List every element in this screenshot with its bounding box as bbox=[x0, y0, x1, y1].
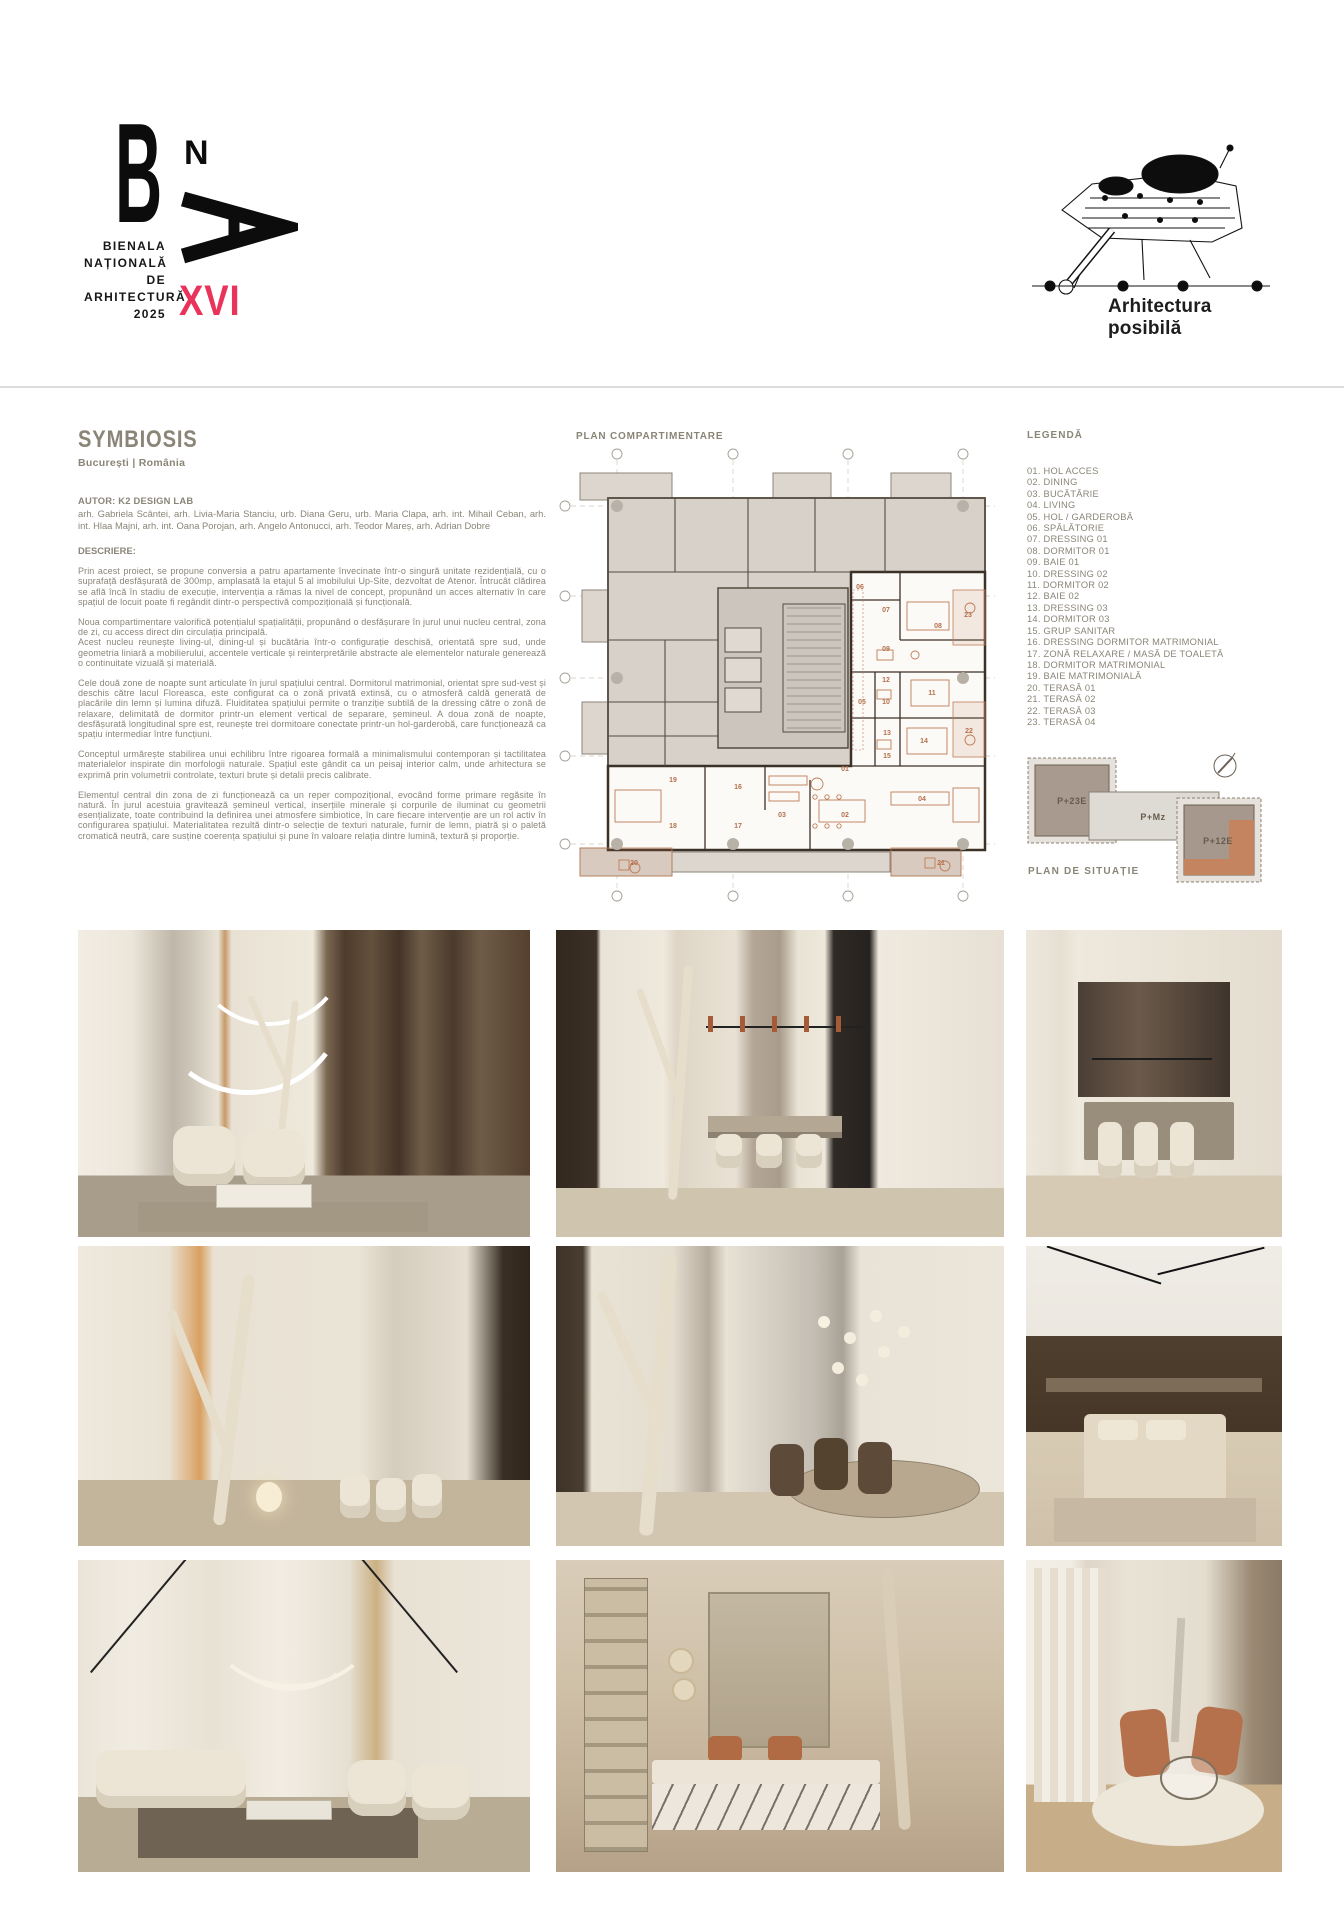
photo-bathroom-vanity bbox=[556, 1560, 1004, 1872]
dining-chair bbox=[858, 1442, 892, 1494]
marble-wall bbox=[1078, 982, 1230, 1097]
legend-item: 04. LIVING bbox=[1027, 500, 1327, 511]
legend-item: 01. HOL ACCES bbox=[1027, 466, 1327, 477]
description-paragraph: Conceptul urmărește stabilirea unui echi… bbox=[78, 749, 546, 780]
logo-letter-b: B bbox=[115, 95, 162, 253]
svg-text:04: 04 bbox=[918, 796, 926, 803]
legend-panel: LEGENDĂ 01. HOL ACCES02. DINING03. BUCĂT… bbox=[1027, 430, 1327, 728]
svg-text:09: 09 bbox=[882, 646, 890, 653]
svg-text:11: 11 bbox=[928, 690, 936, 697]
description-label: DESCRIERE: bbox=[78, 545, 546, 556]
stool bbox=[340, 1474, 370, 1518]
armchair bbox=[243, 1129, 305, 1189]
logo-caption-line: ARHITECTURĂ bbox=[84, 289, 166, 306]
wall-sconce bbox=[668, 1648, 694, 1674]
legend-item: 16. DRESSING DORMITOR MATRIMONIAL bbox=[1027, 637, 1327, 648]
bar-stool bbox=[1170, 1122, 1194, 1178]
photo-living-room-sofas bbox=[78, 1560, 530, 1872]
svg-text:05: 05 bbox=[858, 699, 866, 706]
area-rug bbox=[1054, 1498, 1256, 1542]
svg-text:12: 12 bbox=[882, 677, 890, 684]
legend-item: 22. TERASĂ 03 bbox=[1027, 706, 1327, 717]
legend-item: 12. BAIE 02 bbox=[1027, 591, 1327, 602]
wall-sconce bbox=[672, 1678, 696, 1702]
bubble-chandelier bbox=[818, 1316, 830, 1328]
pendant-cylinders bbox=[708, 1016, 864, 1032]
legend-list: 01. HOL ACCES02. DINING03. BUCĂTĂRIE04. … bbox=[1027, 466, 1327, 728]
hanging-light-curve bbox=[228, 1590, 354, 1691]
svg-text:08: 08 bbox=[934, 623, 942, 630]
page-title: SYMBIOSIS bbox=[78, 426, 471, 454]
tree-branch bbox=[636, 987, 684, 1102]
legend-item: 13. DRESSING 03 bbox=[1027, 603, 1327, 614]
legend-item: 09. BAIE 01 bbox=[1027, 557, 1327, 568]
photo-master-bedroom bbox=[1026, 1246, 1282, 1546]
svg-text:21: 21 bbox=[937, 860, 945, 867]
svg-text:17: 17 bbox=[734, 823, 742, 830]
track-light bbox=[1157, 1247, 1264, 1276]
authors-list: arh. Gabriela Scântei, arh. Livia-Maria … bbox=[78, 508, 546, 531]
legend-item: 11. DORMITOR 02 bbox=[1027, 580, 1327, 591]
glass-block-screen bbox=[584, 1578, 648, 1852]
svg-text:22: 22 bbox=[965, 728, 973, 735]
svg-text:01: 01 bbox=[841, 766, 849, 773]
pillow bbox=[1146, 1420, 1186, 1440]
description-paragraph: Elementul central din zona de zi funcțio… bbox=[78, 790, 546, 841]
photo-hall-tree-stools bbox=[78, 1246, 530, 1546]
svg-text:20: 20 bbox=[630, 860, 638, 867]
legend-item: 23. TERASĂ 04 bbox=[1027, 717, 1327, 728]
legend-item: 20. TERASĂ 01 bbox=[1027, 683, 1327, 694]
tree-sculpture bbox=[213, 1274, 256, 1526]
machine-illustration bbox=[1030, 138, 1275, 296]
vanity-counter bbox=[652, 1760, 880, 1784]
armchair bbox=[412, 1764, 470, 1820]
glass-table bbox=[1160, 1756, 1218, 1800]
photo-lounge-corner bbox=[1026, 1560, 1282, 1872]
description-paragraph: Cele două zone de noapte sunt articulate… bbox=[78, 678, 546, 739]
site-building-p12e: P+12E bbox=[1203, 836, 1233, 846]
tree-sculpture bbox=[881, 1568, 911, 1830]
legend-item: 18. DORMITOR MATRIMONIAL bbox=[1027, 660, 1327, 671]
legend-item: 17. ZONĂ RELAXARE / MASĂ DE TOALETĂ bbox=[1027, 649, 1327, 660]
bar-stool bbox=[1134, 1122, 1158, 1178]
plan-core bbox=[718, 588, 848, 748]
tree-branch bbox=[166, 1308, 234, 1460]
logo-letter-a-rotated bbox=[183, 199, 284, 256]
legend-item: 21. TERASĂ 02 bbox=[1027, 694, 1327, 705]
project-column: SYMBIOSIS București | România AUTOR: K2 … bbox=[78, 426, 546, 841]
light-cable bbox=[90, 1560, 188, 1673]
legend-item: 08. DORMITOR 01 bbox=[1027, 546, 1327, 557]
logo-caption-line: NAȚIONALĂ bbox=[84, 255, 166, 272]
header-divider bbox=[0, 386, 1344, 388]
sculpture bbox=[1171, 1618, 1185, 1742]
svg-text:19: 19 bbox=[669, 777, 677, 784]
curtain bbox=[1034, 1568, 1106, 1802]
legend-item: 06. SPĂLĂTORIE bbox=[1027, 523, 1327, 534]
logo-caption-line: 2025 bbox=[84, 306, 166, 323]
legend-item: 07. DRESSING 01 bbox=[1027, 534, 1327, 545]
photo-living-room-armchairs bbox=[78, 930, 530, 1237]
project-location: București | România bbox=[78, 457, 546, 469]
track-light bbox=[1047, 1246, 1162, 1284]
logo-letter-n: N bbox=[184, 134, 209, 172]
dining-chair bbox=[770, 1444, 804, 1496]
logo-caption: BIENALANAȚIONALĂDEARHITECTURĂ2025 bbox=[84, 238, 166, 323]
vessel-sink bbox=[768, 1736, 802, 1762]
svg-text:06: 06 bbox=[856, 584, 864, 591]
north-arrow-icon bbox=[1214, 753, 1236, 777]
legend-item: 02. DINING bbox=[1027, 477, 1327, 488]
stool bbox=[376, 1478, 406, 1522]
photo-dining-chandelier bbox=[556, 1246, 1004, 1546]
armchair bbox=[173, 1126, 235, 1186]
legend-item: 19. BAIE MATRIMONIALĂ bbox=[1027, 671, 1327, 682]
svg-text:18: 18 bbox=[669, 823, 677, 830]
svg-text:23: 23 bbox=[964, 612, 972, 619]
svg-text:15: 15 bbox=[883, 753, 891, 760]
edition-number: XVI bbox=[179, 277, 240, 326]
armchair bbox=[348, 1760, 406, 1816]
site-plan-title: PLAN DE SITUAȚIE bbox=[1028, 866, 1139, 877]
legend-item: 05. HOL / GARDEROBĂ bbox=[1027, 512, 1327, 523]
svg-text:16: 16 bbox=[734, 784, 742, 791]
stool bbox=[412, 1474, 442, 1518]
floor-plan-drawing: 0102030405060708091011121314151617181920… bbox=[555, 440, 1000, 910]
dining-chair bbox=[796, 1134, 822, 1168]
mirror bbox=[708, 1592, 830, 1748]
coffee-table bbox=[246, 1800, 332, 1820]
coffee-table bbox=[216, 1184, 312, 1208]
legend-item: 14. DORMITOR 03 bbox=[1027, 614, 1327, 625]
logo-caption-line: BIENALA bbox=[84, 238, 166, 255]
site-building-pmz: P+Mz bbox=[1140, 812, 1165, 822]
legend-item: 03. BUCĂTĂRIE bbox=[1027, 489, 1327, 500]
description-paragraph: Noua compartimentare valorifică potenția… bbox=[78, 617, 546, 668]
marble-vanity-front bbox=[652, 1784, 880, 1830]
pillow bbox=[1098, 1420, 1138, 1440]
dining-chair bbox=[716, 1134, 742, 1168]
logo-caption-line: DE bbox=[84, 272, 166, 289]
svg-text:07: 07 bbox=[882, 607, 890, 614]
svg-text:03: 03 bbox=[778, 812, 786, 819]
tagline: Arhitectura posibilă bbox=[1108, 296, 1278, 340]
photo-dining-area-tree bbox=[556, 930, 1004, 1237]
svg-text:13: 13 bbox=[883, 730, 891, 737]
floor-lamp bbox=[256, 1482, 282, 1512]
marble-headboard-strip bbox=[1046, 1378, 1262, 1392]
sofa bbox=[96, 1750, 246, 1808]
photo-kitchen-bar bbox=[1026, 930, 1282, 1237]
legend-item: 10. DRESSING 02 bbox=[1027, 569, 1327, 580]
bar-stool bbox=[1098, 1122, 1122, 1178]
vessel-sink bbox=[708, 1736, 742, 1762]
description-paragraph: Prin acest proiect, se propune conversia… bbox=[78, 566, 546, 607]
legend-item: 15. GRUP SANITAR bbox=[1027, 626, 1327, 637]
author-label: AUTOR: K2 DESIGN LAB bbox=[78, 495, 546, 506]
pendant-light bbox=[1092, 1058, 1212, 1060]
svg-text:10: 10 bbox=[882, 699, 890, 706]
svg-text:14: 14 bbox=[920, 738, 928, 745]
dining-chair bbox=[814, 1438, 848, 1490]
dining-chair bbox=[756, 1134, 782, 1168]
legend-title: LEGENDĂ bbox=[1027, 430, 1327, 441]
svg-text:02: 02 bbox=[841, 812, 849, 819]
site-building-p23e: P+23E bbox=[1057, 796, 1087, 806]
description-paragraphs: Prin acest proiect, se propune conversia… bbox=[78, 566, 546, 841]
presentation-board: B N BIENALANAȚIONALĂDEARHITECTURĂ2025 XV… bbox=[0, 0, 1344, 1920]
